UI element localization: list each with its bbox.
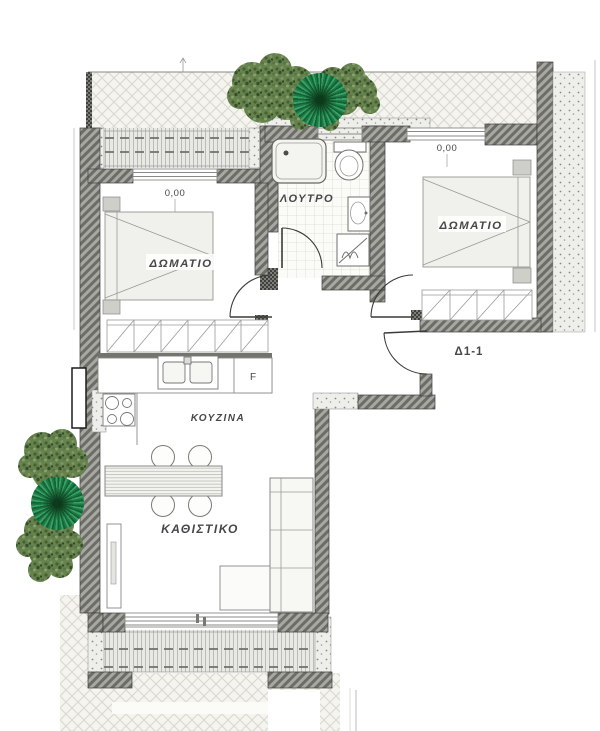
wall-living-bottom-b bbox=[103, 613, 125, 632]
chair bbox=[152, 494, 175, 517]
exterior-column bbox=[72, 368, 86, 428]
chair bbox=[189, 446, 212, 469]
dining-set bbox=[105, 446, 222, 517]
double-sink-icon bbox=[158, 356, 218, 389]
kitchen-furniture: F bbox=[98, 356, 272, 517]
wall-bathroom-right bbox=[370, 126, 385, 302]
room-label-bathroom: ΛΟΥΤΡΟ bbox=[279, 193, 334, 205]
wardrobe-left bbox=[107, 320, 268, 352]
wall-bathroom-top-b bbox=[362, 126, 410, 142]
room-label-bedroom-left: ΔΩΜΑΤΙΟ bbox=[148, 258, 212, 270]
room-label-living: ΚΑΘΙΣΤΙΚΟ bbox=[161, 522, 239, 536]
wall-bedright-top bbox=[485, 124, 537, 145]
window-bedroom-right bbox=[407, 128, 485, 140]
tv-unit bbox=[107, 524, 121, 608]
sofa bbox=[270, 478, 313, 612]
svg-text:0,00: 0,00 bbox=[437, 143, 458, 154]
level-marker-bedroom-left: 0,00 bbox=[165, 188, 186, 212]
wall-right bbox=[537, 62, 553, 332]
dining-table bbox=[105, 466, 222, 496]
wall-bedleft-right bbox=[255, 183, 268, 275]
shower-tray-icon bbox=[272, 139, 326, 183]
chair bbox=[189, 494, 212, 517]
fridge-label: F bbox=[250, 372, 256, 383]
water-heater-icon bbox=[337, 234, 369, 266]
palm-tree-icon bbox=[31, 477, 84, 530]
chair bbox=[152, 446, 175, 469]
wall-living-right bbox=[315, 407, 329, 614]
room-label-kitchen: ΚΟΥΖΙΝΑ bbox=[191, 413, 245, 424]
bedroom-left-furniture bbox=[103, 197, 268, 352]
wall-left-edge bbox=[86, 72, 92, 128]
nightstand bbox=[513, 160, 531, 175]
level-marker-bedroom-right: 0,00 bbox=[437, 143, 458, 167]
unit-label: Δ1-1 bbox=[455, 346, 484, 358]
door-entry bbox=[384, 331, 427, 374]
wall-living-top bbox=[358, 395, 435, 409]
fridge: F bbox=[234, 358, 272, 393]
nightstand bbox=[103, 197, 120, 211]
wardrobe-right bbox=[422, 290, 532, 320]
svg-text:0,00: 0,00 bbox=[165, 188, 186, 199]
wall-living-bottom-a bbox=[88, 613, 103, 632]
living-room-furniture bbox=[107, 478, 313, 612]
wall-entry bbox=[420, 374, 432, 396]
wall-outer-bottom-b bbox=[268, 672, 332, 688]
window-bathroom bbox=[318, 128, 362, 140]
wall-outer-bottom-a bbox=[88, 672, 132, 688]
washbasin-icon bbox=[348, 197, 370, 231]
bedroom-right-furniture bbox=[422, 160, 532, 320]
room-label-bedroom-right: ΔΩΜΑΤΙΟ bbox=[438, 220, 502, 232]
stove-burners-icon bbox=[103, 394, 135, 426]
window-bedroom-left bbox=[133, 169, 217, 180]
floor-plan-canvas: F bbox=[0, 0, 600, 731]
sliding-door-living bbox=[125, 613, 278, 627]
nightstand bbox=[513, 268, 531, 283]
balcony-top-left bbox=[88, 128, 265, 168]
wall-bathroom-bottom bbox=[322, 276, 385, 290]
wall-living-top-stipple bbox=[313, 393, 358, 409]
wall-living-bottom-c bbox=[278, 613, 328, 632]
nightstand bbox=[103, 300, 120, 314]
wall-bedleft-top-a bbox=[88, 169, 133, 183]
insulation-right bbox=[553, 72, 585, 332]
palm-tree-icon bbox=[293, 73, 347, 127]
door-jamb-bedright bbox=[411, 310, 423, 320]
